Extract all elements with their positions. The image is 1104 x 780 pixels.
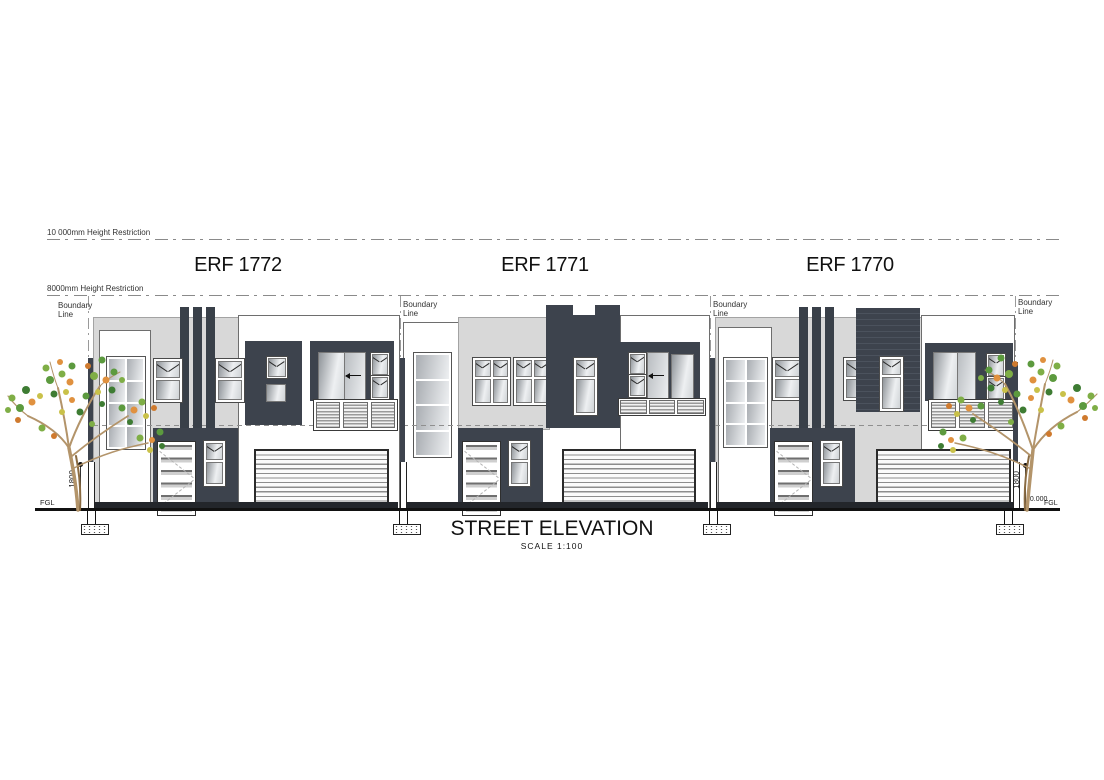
height-restriction-10000-line — [47, 239, 1060, 240]
stair-window — [723, 357, 768, 448]
fixed-pane — [511, 462, 528, 484]
tower-cap — [546, 305, 573, 317]
vertical-fin — [193, 307, 202, 428]
square-window — [266, 384, 286, 402]
awning-sash — [218, 361, 242, 378]
fixed-pane — [516, 379, 532, 403]
awning-sash — [475, 360, 491, 377]
balcony-louvre-balustrade — [618, 398, 706, 416]
awning-window — [215, 358, 245, 403]
awning-sash — [372, 354, 388, 375]
feature-dark-tower — [856, 308, 920, 412]
slider-glass-pane — [318, 352, 346, 401]
drawing-scale: SCALE 1:100 — [402, 541, 702, 551]
stair-window-pane — [416, 355, 449, 379]
vertical-fin — [799, 307, 808, 428]
awning-sash — [206, 443, 223, 460]
louvre-panel — [343, 402, 367, 428]
awning-sash — [576, 360, 595, 377]
double-awning-window — [472, 357, 511, 406]
tree-left — [2, 352, 180, 514]
boundary-label-4-word2: Line — [1018, 307, 1052, 316]
stair-window-pane — [747, 382, 766, 402]
ground-floor-dark-panel — [458, 428, 543, 508]
height-restriction-10000-label: 10 000mm Height Restriction — [47, 228, 150, 237]
awning-sash — [268, 358, 286, 377]
stacked-awning-window — [370, 375, 390, 400]
tower-narrow-window — [879, 356, 904, 412]
ground-floor-window — [508, 440, 531, 487]
fixed-pane — [218, 380, 242, 400]
fixed-pane — [823, 462, 840, 484]
ground-line — [35, 508, 1060, 511]
feature-dark-panel — [245, 341, 302, 425]
door-slide-arrow — [649, 375, 664, 376]
door-slide-arrow — [346, 375, 361, 376]
stair-window-pane — [726, 360, 745, 380]
footing-pad — [996, 524, 1024, 535]
garage-door — [254, 449, 389, 510]
height-restriction-8000-label: 8000mm Height Restriction — [47, 284, 143, 293]
height-restriction-8000-line — [47, 295, 1060, 296]
fixed-pane — [882, 377, 901, 409]
louvre-panel — [316, 402, 340, 428]
tree-right — [925, 350, 1101, 514]
ground-floor-window — [820, 440, 843, 487]
awning-sash — [516, 360, 532, 377]
stair-window — [413, 352, 452, 458]
fixed-pane — [206, 462, 223, 484]
balcony-louvre-balustrade — [313, 399, 398, 431]
footing-pad — [81, 524, 109, 535]
house-erf-1771 — [400, 300, 710, 514]
boundary-label-4: Boundary Line — [1018, 298, 1052, 316]
awning-sash — [823, 443, 840, 460]
tower-cap — [595, 305, 620, 317]
louvre-panel — [371, 402, 395, 428]
party-wall — [400, 358, 405, 462]
drawing-title: STREET ELEVATION — [402, 517, 702, 541]
stair-window-pane — [416, 381, 449, 405]
stair-window-pane — [747, 360, 766, 380]
fixed-pane — [475, 379, 491, 403]
footing-stub — [709, 511, 718, 525]
ground-floor-dark-panel — [770, 428, 855, 508]
vertical-fin — [812, 307, 821, 428]
awning-sash — [630, 354, 645, 374]
awning-sash — [511, 443, 528, 460]
stacked-awning-window — [628, 352, 647, 376]
stair-window-pane — [726, 425, 745, 445]
balcony-window — [671, 354, 694, 400]
awning-sash — [372, 377, 388, 398]
party-wall-lower — [400, 462, 407, 508]
vertical-fin — [825, 307, 834, 428]
ground-floor-window — [203, 440, 226, 487]
stair-window-pane — [747, 425, 766, 445]
fixed-pane — [775, 379, 800, 398]
erf-1771-title: ERF 1771 — [455, 254, 635, 277]
tower-narrow-window — [573, 357, 598, 416]
stacked-awning-window — [370, 352, 390, 377]
awning-sash — [630, 376, 645, 396]
balcony-recess-panel — [618, 342, 700, 398]
fixed-pane — [493, 379, 509, 403]
stacked-awning-window — [628, 374, 647, 398]
garage-door — [562, 449, 696, 510]
awning-sash — [882, 359, 901, 375]
small-awning-window — [266, 356, 288, 379]
stair-window-pane — [726, 382, 745, 402]
louvre-panel — [677, 400, 704, 414]
awning-sash — [775, 360, 800, 377]
boundary-label-4-word1: Boundary — [1018, 298, 1052, 307]
awning-sash — [493, 360, 509, 377]
vertical-fin — [206, 307, 215, 428]
street-elevation-drawing: 10 000mm Height Restriction 8000mm Heigh… — [0, 0, 1104, 780]
stair-window-pane — [747, 404, 766, 424]
erf-1772-title: ERF 1772 — [148, 254, 328, 277]
balcony-recess-panel — [310, 341, 394, 401]
party-wall — [710, 358, 715, 462]
footing-pad — [703, 524, 731, 535]
stair-window-pane — [416, 432, 449, 456]
stair-window-pane — [726, 404, 745, 424]
louvre-panel — [620, 400, 647, 414]
erf-1770-title: ERF 1770 — [760, 254, 940, 277]
party-wall-lower — [710, 462, 717, 508]
fixed-pane — [576, 379, 595, 413]
louvre-panel — [649, 400, 676, 414]
